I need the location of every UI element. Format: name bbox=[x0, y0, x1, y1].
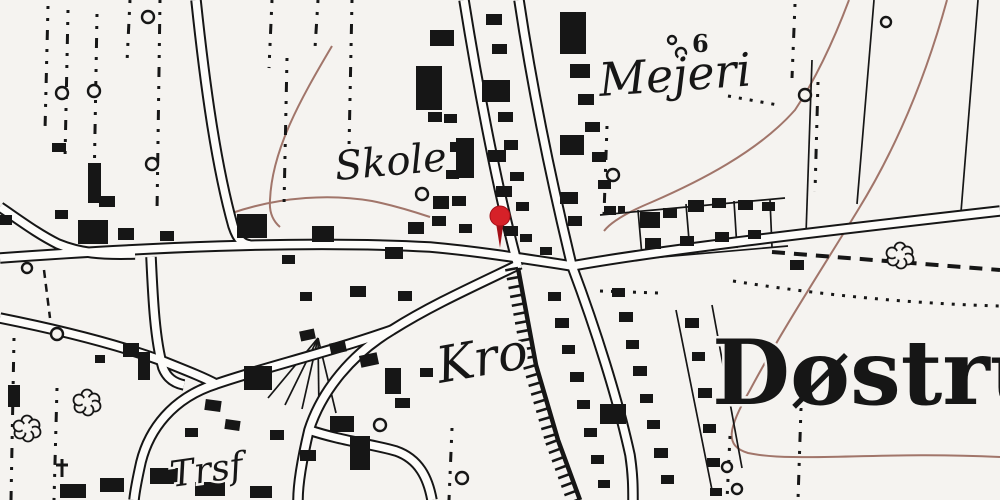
building bbox=[244, 366, 272, 390]
building bbox=[452, 196, 466, 206]
boundary-ring-symbol bbox=[881, 17, 891, 27]
building bbox=[640, 212, 660, 228]
building bbox=[626, 340, 639, 349]
building bbox=[738, 200, 753, 210]
building bbox=[585, 122, 600, 132]
historical-map: MejeriSkoleKroTrsfDøstru6 bbox=[0, 0, 1000, 500]
building bbox=[633, 366, 647, 376]
building bbox=[482, 80, 510, 102]
building bbox=[577, 400, 590, 409]
building bbox=[350, 286, 366, 297]
building bbox=[698, 388, 712, 398]
building bbox=[710, 488, 722, 496]
building bbox=[600, 404, 626, 424]
building bbox=[237, 214, 267, 238]
building bbox=[715, 232, 729, 242]
boundary-ring-symbol bbox=[722, 462, 732, 472]
boundary-ring-symbol bbox=[456, 472, 468, 484]
building bbox=[516, 202, 529, 211]
building bbox=[385, 368, 401, 394]
building bbox=[504, 140, 518, 150]
building bbox=[707, 458, 720, 467]
boundary-ring-symbol bbox=[668, 36, 676, 44]
building bbox=[504, 226, 518, 236]
building bbox=[548, 292, 561, 301]
building bbox=[444, 114, 457, 123]
building bbox=[60, 484, 86, 498]
building bbox=[578, 94, 594, 105]
building bbox=[661, 475, 674, 484]
label-mejeri: Mejeri bbox=[596, 42, 753, 107]
boundary-ring-symbol bbox=[51, 328, 63, 340]
building bbox=[138, 352, 150, 380]
building bbox=[486, 14, 502, 25]
building bbox=[118, 228, 134, 240]
building bbox=[398, 291, 412, 301]
building bbox=[654, 448, 668, 458]
pin-head bbox=[490, 206, 510, 226]
building bbox=[350, 436, 370, 470]
building bbox=[568, 216, 582, 226]
building bbox=[428, 112, 442, 122]
building bbox=[0, 215, 12, 225]
building bbox=[300, 292, 312, 301]
building bbox=[282, 255, 295, 264]
boundary-ring-symbol bbox=[607, 169, 619, 181]
building bbox=[520, 234, 532, 242]
building bbox=[498, 112, 513, 122]
building bbox=[688, 200, 704, 212]
building bbox=[790, 260, 804, 270]
label-skole: Skole bbox=[333, 134, 449, 190]
building bbox=[560, 135, 584, 155]
building bbox=[540, 247, 552, 255]
building bbox=[450, 142, 464, 152]
map-svg: MejeriSkoleKroTrsfDøstru6 bbox=[0, 0, 1000, 500]
building bbox=[430, 30, 454, 46]
building bbox=[560, 12, 586, 54]
building bbox=[99, 196, 115, 207]
building bbox=[510, 172, 524, 181]
building bbox=[712, 198, 726, 208]
building bbox=[570, 372, 584, 382]
boundary-ring-symbol bbox=[732, 484, 742, 494]
building bbox=[570, 64, 590, 78]
building bbox=[123, 343, 139, 357]
building bbox=[100, 478, 124, 492]
building bbox=[250, 486, 272, 498]
building bbox=[270, 430, 284, 440]
building bbox=[488, 150, 506, 162]
building bbox=[459, 224, 472, 233]
building bbox=[645, 238, 661, 249]
building bbox=[647, 420, 660, 429]
building bbox=[619, 312, 633, 322]
building bbox=[748, 230, 761, 239]
building bbox=[8, 385, 20, 407]
label-dostrup: Døstru bbox=[712, 320, 1000, 426]
building bbox=[592, 152, 606, 162]
building bbox=[95, 355, 105, 363]
building bbox=[598, 480, 610, 488]
boundary-ring-symbol bbox=[142, 11, 154, 23]
building bbox=[395, 398, 410, 408]
building bbox=[300, 450, 316, 461]
boundary-ring-symbol bbox=[799, 89, 811, 101]
building bbox=[680, 236, 694, 246]
building bbox=[204, 399, 221, 412]
boundary-ring-symbol bbox=[374, 419, 386, 431]
building bbox=[612, 288, 625, 297]
building bbox=[562, 345, 575, 354]
boundary-ring-symbol bbox=[416, 188, 428, 200]
building bbox=[224, 419, 240, 431]
building bbox=[640, 394, 653, 403]
building bbox=[663, 208, 677, 218]
boundary-ring-symbol bbox=[56, 87, 68, 99]
building bbox=[185, 428, 198, 437]
building bbox=[385, 247, 403, 259]
building bbox=[618, 206, 625, 213]
boundary-ring-symbol bbox=[22, 263, 32, 273]
building bbox=[78, 220, 108, 244]
boundary-ring-symbol bbox=[88, 85, 100, 97]
label-elevation-6: 6 bbox=[692, 29, 709, 58]
building bbox=[416, 66, 442, 110]
building bbox=[762, 202, 775, 211]
building bbox=[496, 186, 512, 197]
building bbox=[408, 222, 424, 234]
boundary-ring-symbol bbox=[146, 158, 158, 170]
building bbox=[330, 416, 354, 432]
building bbox=[55, 210, 68, 219]
building bbox=[432, 216, 446, 226]
building bbox=[420, 368, 433, 377]
building bbox=[598, 180, 611, 189]
building bbox=[52, 143, 66, 152]
building bbox=[160, 231, 174, 241]
building bbox=[692, 352, 705, 361]
building bbox=[685, 318, 699, 328]
building bbox=[312, 226, 334, 242]
building bbox=[591, 455, 604, 464]
building bbox=[584, 428, 597, 437]
building bbox=[560, 192, 578, 204]
building bbox=[433, 196, 449, 209]
building bbox=[555, 318, 569, 328]
building bbox=[492, 44, 507, 54]
building bbox=[609, 208, 616, 215]
